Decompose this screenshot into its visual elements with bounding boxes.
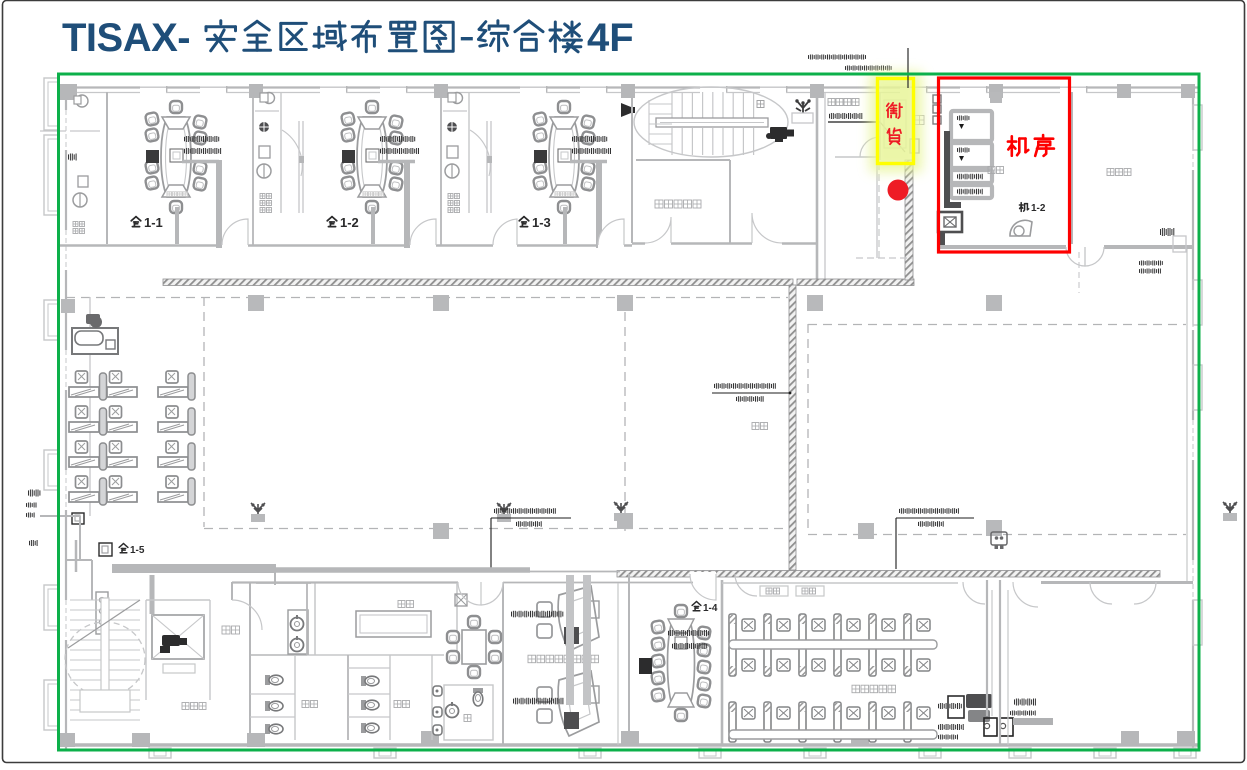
svg-text:1-4: 1-4 [703, 603, 718, 614]
svg-text:4F: 4F [587, 16, 634, 60]
svg-text:1-2: 1-2 [340, 215, 359, 230]
svg-text:1-3: 1-3 [532, 215, 551, 230]
svg-text:1-5: 1-5 [130, 545, 145, 556]
svg-text:1-1: 1-1 [144, 215, 163, 230]
svg-text:1-2: 1-2 [1031, 203, 1046, 214]
svg-text:TISAX-: TISAX- [62, 16, 190, 60]
